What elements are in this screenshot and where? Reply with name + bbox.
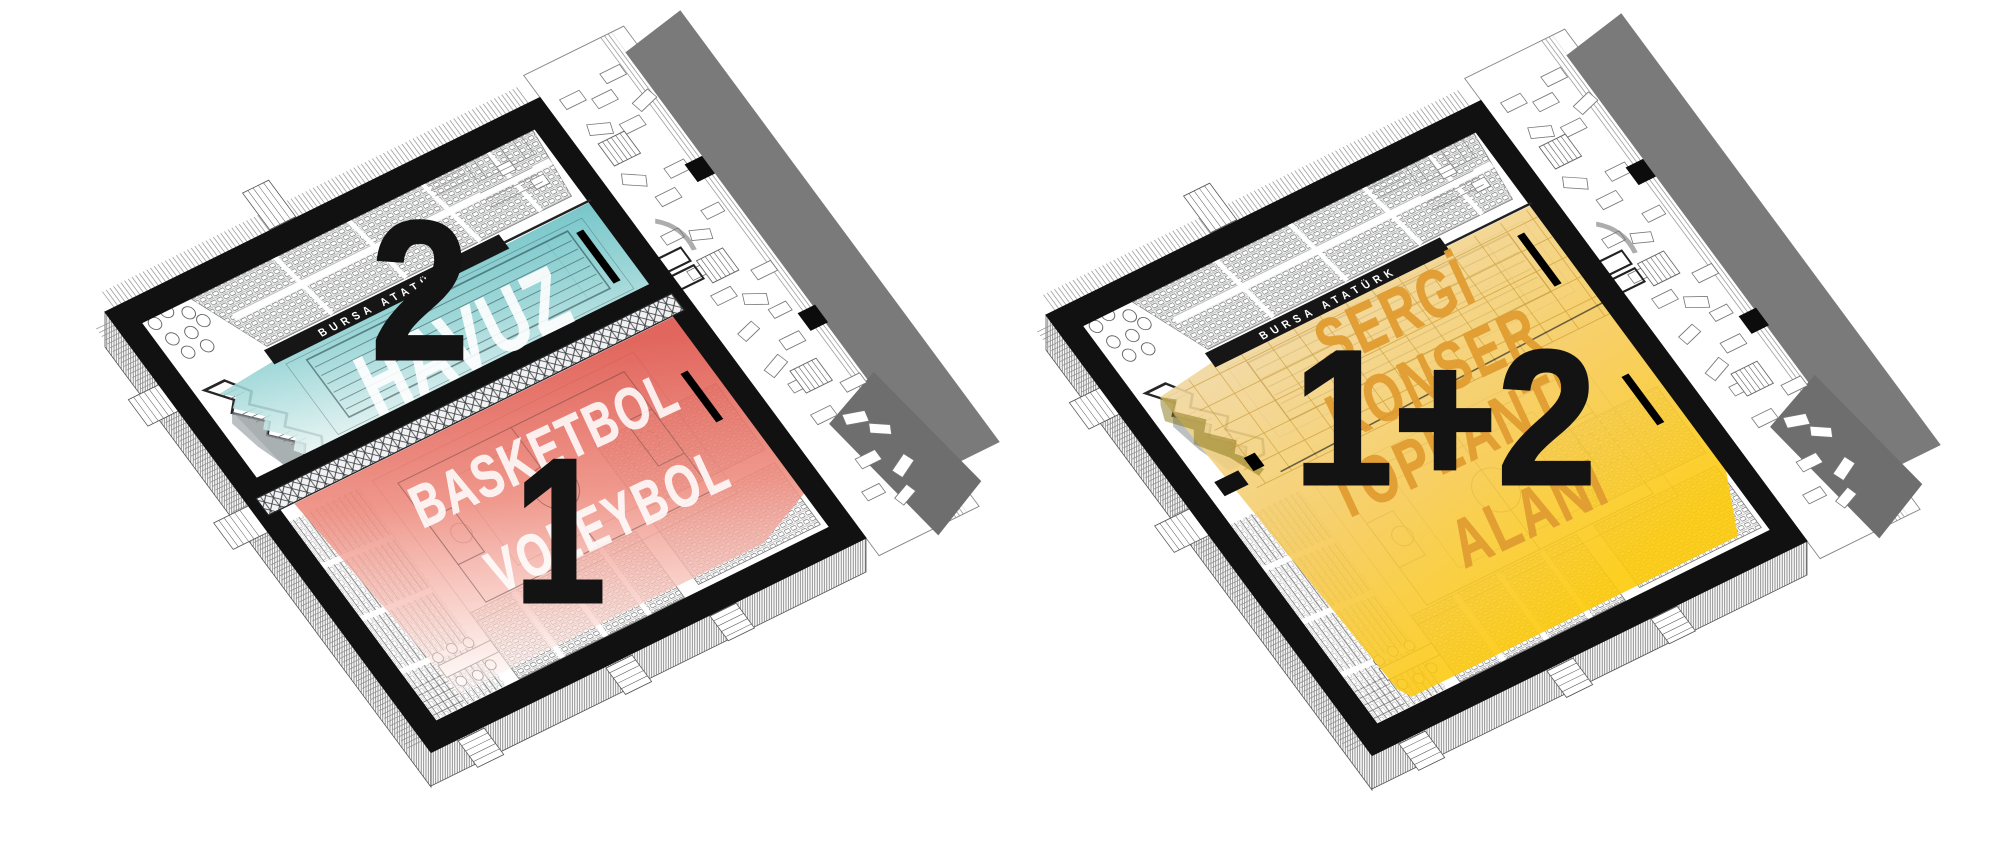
svg-text:2: 2	[371, 179, 469, 401]
svg-text:1: 1	[514, 415, 606, 646]
svg-text:1+2: 1+2	[1294, 311, 1597, 525]
